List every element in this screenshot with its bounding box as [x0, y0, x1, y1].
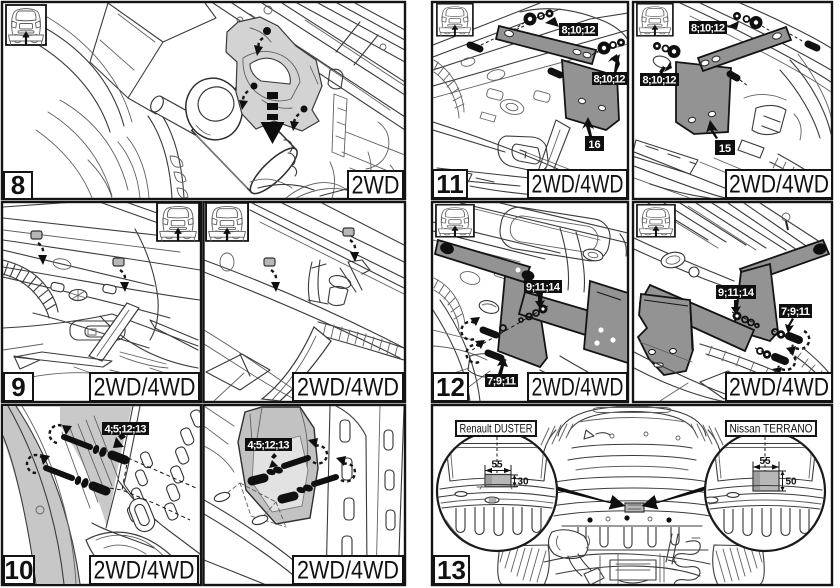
svg-text:9;11;14: 9;11;14: [526, 282, 561, 294]
svg-text:4;5;12;13: 4;5;12;13: [105, 424, 147, 436]
svg-text:13: 13: [437, 555, 466, 585]
svg-text:9: 9: [11, 372, 25, 402]
svg-text:8;10;12: 8;10;12: [643, 75, 677, 87]
svg-text:4;5;12;13: 4;5;12;13: [248, 440, 290, 452]
svg-text:2WD: 2WD: [352, 172, 400, 200]
svg-text:55: 55: [759, 456, 771, 467]
svg-text:12: 12: [436, 372, 465, 402]
svg-text:Nissan TERRANO: Nissan TERRANO: [730, 422, 813, 436]
svg-text:15: 15: [719, 143, 731, 155]
svg-text:8;10;12: 8;10;12: [594, 74, 626, 86]
svg-text:2WD/4WD: 2WD/4WD: [297, 557, 399, 585]
svg-text:55: 55: [491, 460, 503, 471]
svg-text:Renault DUSTER: Renault DUSTER: [460, 422, 533, 436]
svg-text:2WD/4WD: 2WD/4WD: [532, 374, 624, 402]
svg-text:2WD/4WD: 2WD/4WD: [729, 374, 829, 402]
svg-text:9;11;14: 9;11;14: [718, 287, 755, 299]
svg-text:8;10;12: 8;10;12: [562, 25, 596, 37]
svg-text:2WD/4WD: 2WD/4WD: [94, 557, 195, 585]
svg-text:2WD/4WD: 2WD/4WD: [94, 374, 196, 402]
svg-text:7;9;11: 7;9;11: [781, 306, 810, 318]
svg-text:11: 11: [436, 169, 464, 199]
svg-text:7;9;11: 7;9;11: [487, 376, 516, 388]
svg-text:10: 10: [5, 555, 34, 585]
svg-text:8;10;12: 8;10;12: [691, 23, 725, 35]
svg-text:8: 8: [11, 170, 25, 200]
svg-text:2WD/4WD: 2WD/4WD: [297, 374, 399, 402]
svg-text:2WD/4WD: 2WD/4WD: [729, 171, 829, 199]
svg-text:16: 16: [588, 139, 600, 151]
svg-text:2WD/4WD: 2WD/4WD: [532, 171, 624, 199]
